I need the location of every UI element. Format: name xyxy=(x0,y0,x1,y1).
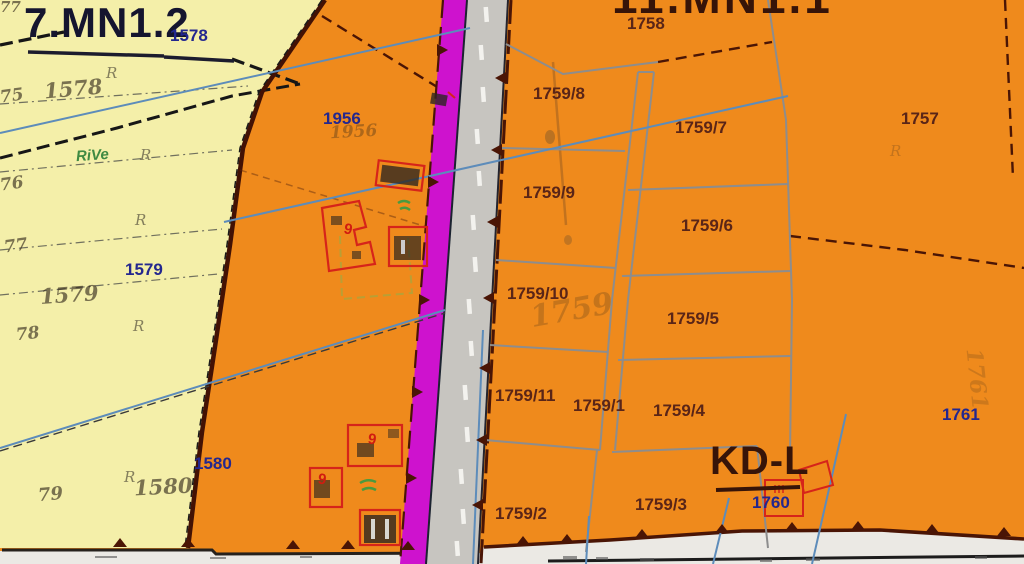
parcel-label-1758: 1758 xyxy=(627,15,665,32)
handwritten-1578: 1578 xyxy=(43,75,103,101)
parcel-label-1759-1: 1759/1 xyxy=(573,397,625,414)
parcel-label-1760: 1760 xyxy=(752,494,790,511)
parcel-label-1759-8: 1759/8 xyxy=(533,85,585,102)
parcel-label-1578: 1578 xyxy=(170,27,208,44)
edge-number-78: 78 xyxy=(15,325,40,344)
cadastral-map: 7.MN1.2 11.MN1.1 KD-L 1578 1579 1580 195… xyxy=(0,0,1024,564)
parcel-label-1759-3: 1759/3 xyxy=(635,496,687,513)
parcel-label-1757: 1757 xyxy=(901,110,939,127)
handwritten-1579: 1579 xyxy=(39,282,99,307)
landuse-symbol-r: R xyxy=(133,319,144,334)
edge-number-76: 76 xyxy=(0,174,25,194)
edge-number-79: 79 xyxy=(37,485,64,505)
parcel-label-1579: 1579 xyxy=(125,261,163,278)
handwritten-1580: 1580 xyxy=(133,474,192,498)
parcel-label-1759-6: 1759/6 xyxy=(681,217,733,234)
edge-number-77: 77 xyxy=(3,236,29,256)
parcel-label-1580: 1580 xyxy=(194,455,232,472)
landuse-symbol-r: R xyxy=(135,213,146,228)
edge-number-77-top: 77 xyxy=(0,0,21,15)
parcel-label-1759-7: 1759/7 xyxy=(675,119,727,136)
zone-label-left: 7.MN1.2 xyxy=(24,2,190,44)
landuse-symbol-r: R xyxy=(124,470,135,485)
edge-number-75: 75 xyxy=(0,86,25,106)
vegetation-label: RiVe xyxy=(76,147,110,164)
parcel-label-1759-11: 1759/11 xyxy=(495,387,556,404)
parcel-label-1759-4: 1759/4 xyxy=(653,402,705,419)
landuse-symbol-r: R xyxy=(140,148,151,163)
landuse-symbol-r: R xyxy=(106,66,117,81)
handwritten-1761: 1761 xyxy=(962,347,990,410)
parcel-label-1759-5: 1759/5 xyxy=(667,310,719,327)
landuse-symbol-r: R xyxy=(890,144,901,159)
road-class-label: KD-L xyxy=(710,441,810,481)
parcel-label-1759-9: 1759/9 xyxy=(523,184,575,201)
handwritten-1956: 1956 xyxy=(330,123,378,142)
parcel-label-1759-2: 1759/2 xyxy=(495,505,547,522)
